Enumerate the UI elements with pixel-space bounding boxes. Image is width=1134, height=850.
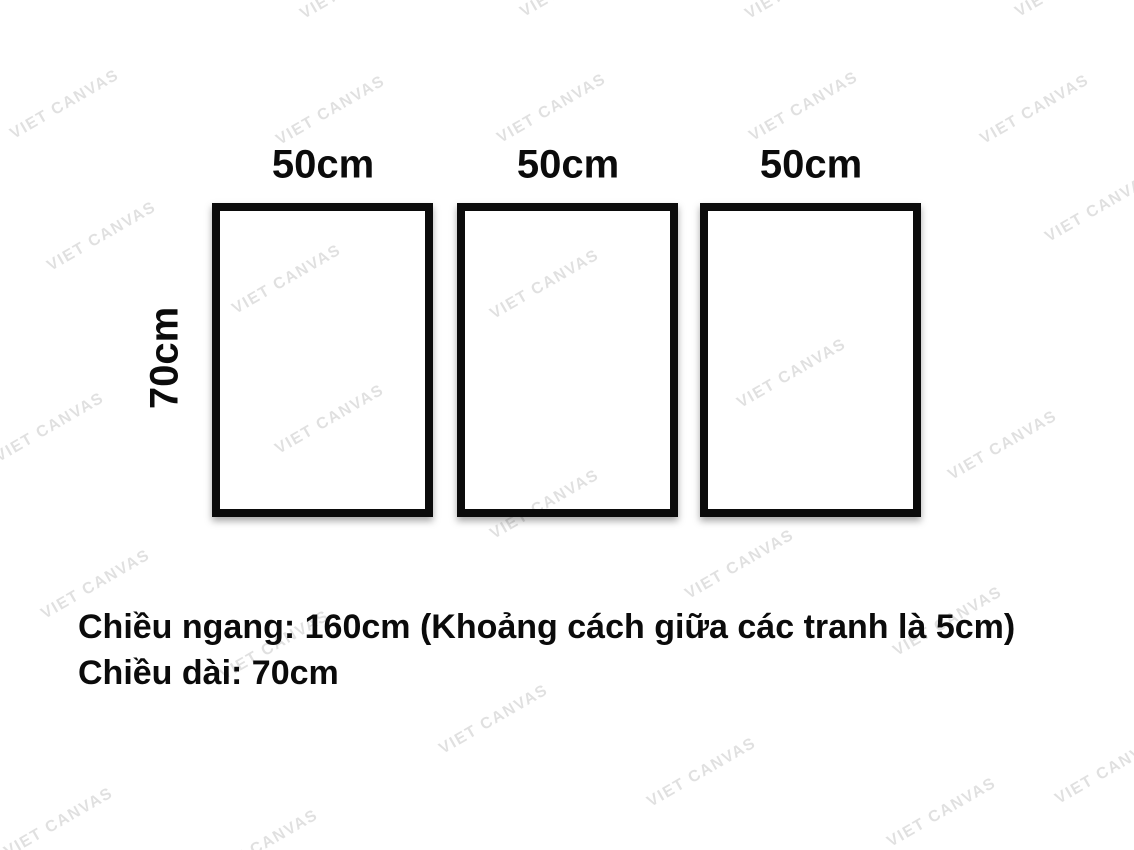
watermark-text: VIET CANVAS (1052, 731, 1134, 808)
frame-1 (212, 203, 433, 517)
frame-1-width-label: 50cm (272, 143, 374, 188)
dimension-notes: Chiều ngang: 160cm (Khoảng cách giữa các… (78, 604, 1015, 696)
frame-2-width-label: 50cm (517, 143, 619, 188)
frame-3-width-label: 50cm (760, 143, 862, 188)
watermark-text: VIET CANVAS (746, 68, 861, 145)
watermark-text: VIET CANVAS (884, 774, 999, 850)
watermark-text: VIET CANVAS (517, 0, 632, 22)
watermark-text: VIET CANVAS (1042, 169, 1134, 246)
watermark-text: VIET CANVAS (945, 407, 1060, 484)
watermark-text: VIET CANVAS (682, 526, 797, 603)
frame-2 (457, 203, 678, 517)
watermark-text: VIET CANVAS (273, 72, 388, 149)
watermark-text: VIET CANVAS (297, 0, 412, 24)
frames-height-label: 70cm (143, 307, 188, 409)
watermark-text: VIET CANVAS (0, 389, 108, 466)
watermark-text: VIET CANVAS (1012, 0, 1127, 22)
dimension-diagram: VIET CANVASVIET CANVASVIET CANVASVIET CA… (0, 0, 1134, 850)
watermark-text: VIET CANVAS (44, 198, 159, 275)
watermark-text: VIET CANVAS (1, 784, 116, 850)
watermark-text: VIET CANVAS (977, 71, 1092, 148)
note-horizontal-dimension: Chiều ngang: 160cm (Khoảng cách giữa các… (78, 604, 1015, 650)
watermark-text: VIET CANVAS (494, 70, 609, 147)
watermark-text: VIET CANVAS (7, 66, 122, 143)
watermark-text: VIET CANVAS (644, 734, 759, 811)
note-vertical-dimension: Chiều dài: 70cm (78, 650, 1015, 696)
watermark-text: VIET CANVAS (742, 0, 857, 24)
frame-3 (700, 203, 921, 517)
watermark-text: VIET CANVAS (206, 806, 321, 850)
